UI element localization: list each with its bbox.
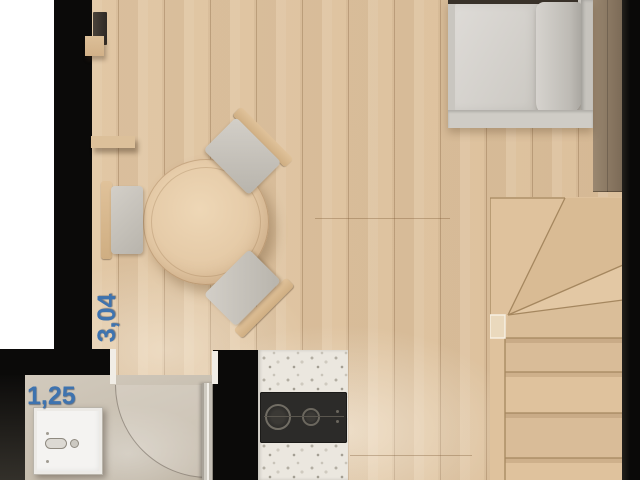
bathroom-sink <box>33 407 103 475</box>
kitchen-counter <box>258 350 348 480</box>
dining-chair <box>99 181 145 259</box>
cooktop-knob <box>336 420 339 423</box>
burner-large-icon <box>265 404 291 430</box>
chair-seat <box>111 186 143 254</box>
wall-bathroom-left <box>0 375 25 480</box>
wall-kitchen <box>213 350 258 480</box>
cooktop-knob <box>336 410 339 413</box>
wall-right <box>622 0 640 480</box>
faucet-knob-icon <box>70 439 79 448</box>
outside-margin <box>0 0 54 349</box>
faucet-icon <box>45 438 67 449</box>
sofa-seat-cushion <box>455 4 539 111</box>
wall-bathroom-top <box>0 349 110 375</box>
door-swing-arc <box>115 375 213 478</box>
floor-plank-joint <box>350 455 472 456</box>
sofa-front-rail <box>448 110 593 128</box>
wood-grain-line <box>607 0 608 192</box>
staircase <box>490 197 623 480</box>
sofa <box>448 0 593 128</box>
cooktop-divider-line <box>264 416 344 417</box>
bathroom-door <box>202 383 213 480</box>
floorplan-canvas: 3,04 1,25 <box>0 0 640 480</box>
sofa-armrest <box>581 0 593 128</box>
sofa-back-cushion <box>536 2 584 116</box>
door-jamb <box>110 349 116 384</box>
floor-plank-joint <box>315 218 450 219</box>
wall-shelf <box>91 136 135 148</box>
cooktop <box>260 392 347 443</box>
dimension-label-horizontal: 1,25 <box>27 384 89 409</box>
sink-fixture-dot <box>46 432 49 435</box>
door-jamb <box>212 351 218 384</box>
sink-fixture-dot <box>46 460 49 463</box>
side-console-wood <box>593 0 623 192</box>
dimension-label-vertical: 3,04 <box>95 282 123 354</box>
burner-small-icon <box>302 408 320 426</box>
wall-shelf <box>85 36 104 56</box>
